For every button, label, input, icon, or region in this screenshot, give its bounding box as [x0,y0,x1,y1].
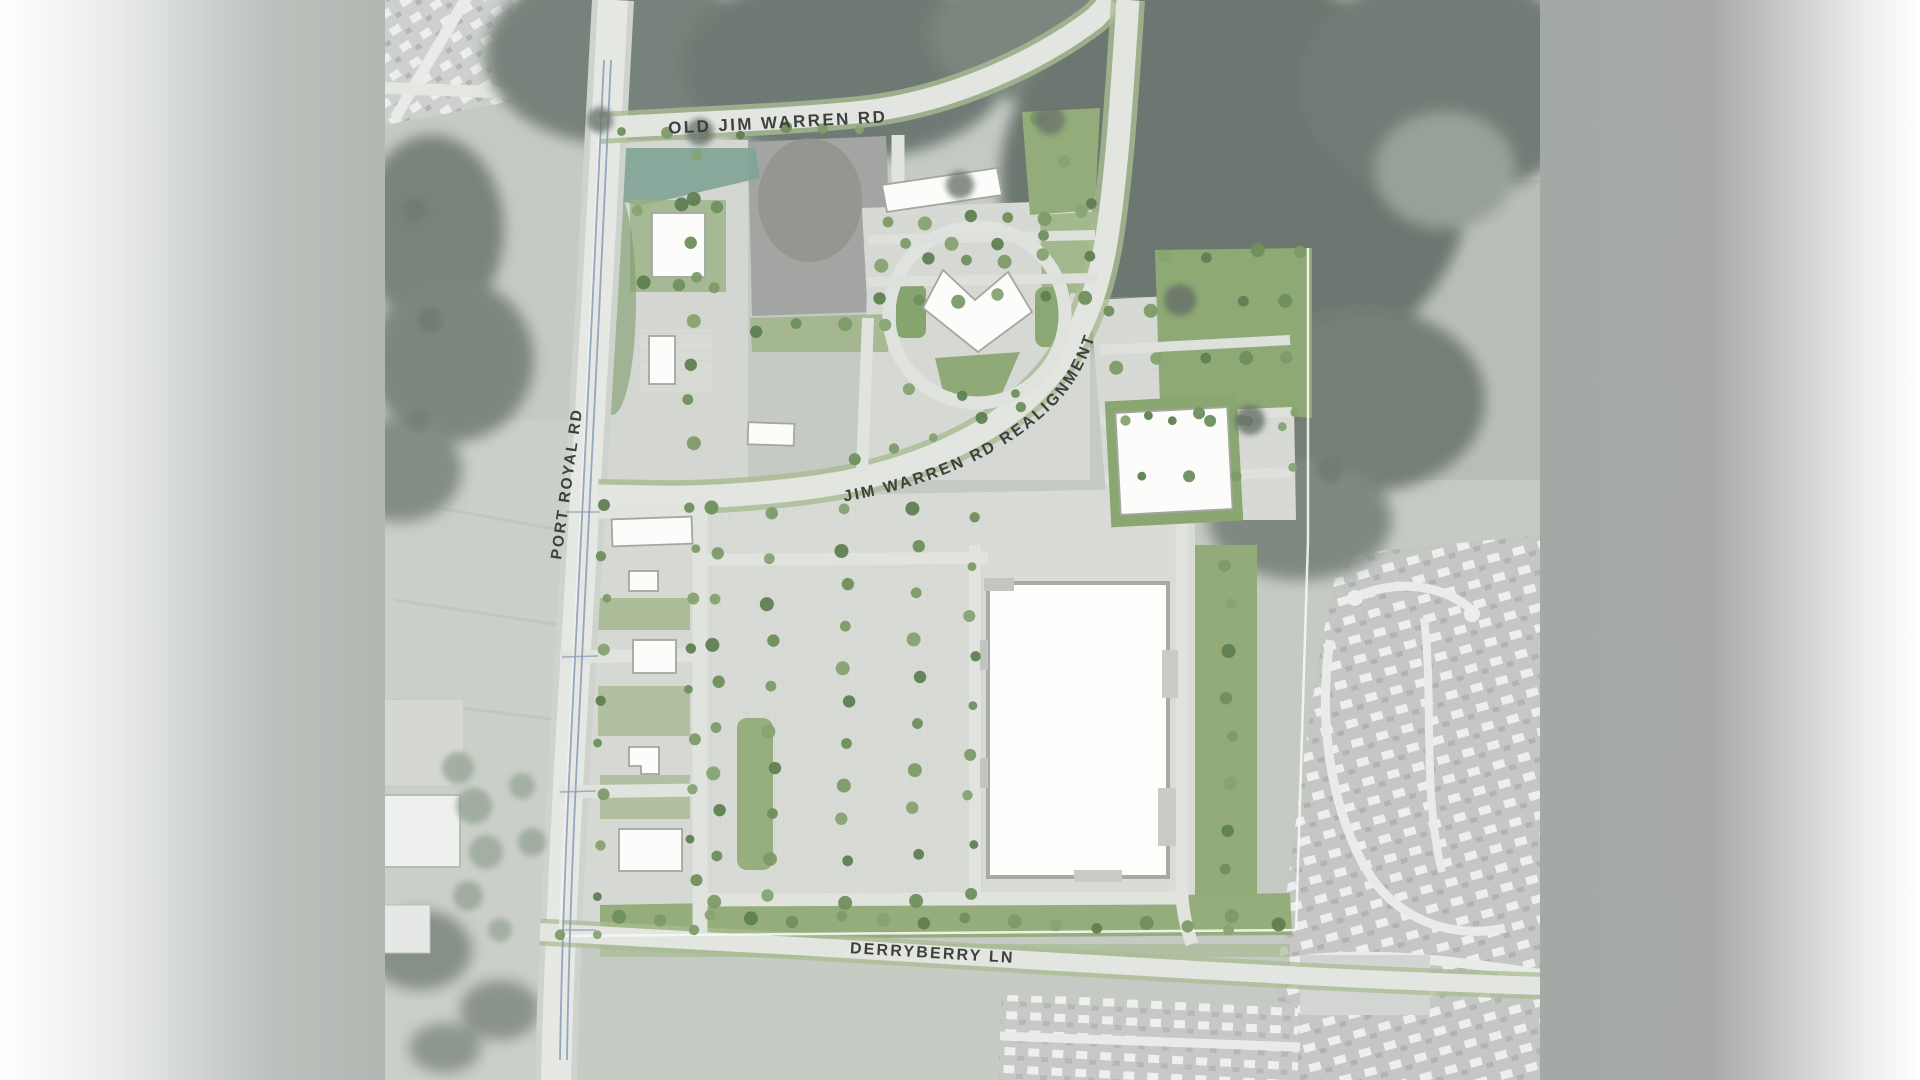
site-plan-screenshot: OLD JIM WARREN RD PORT ROYAL RD JIM WARR… [0,0,1920,1080]
building-outparcel-w2 [649,336,675,384]
site-plan-map: OLD JIM WARREN RD PORT ROYAL RD JIM WARR… [0,0,1920,1080]
building-anchor [980,578,1178,882]
building-outparcel-b [629,571,658,591]
aerial-photo: OLD JIM WARREN RD PORT ROYAL RD JIM WARR… [338,0,1590,1080]
building-outparcel-nw [652,213,705,277]
building-outparcel-a [612,517,693,547]
building-outparcel-e [619,829,682,871]
building-outparcel-center [748,422,795,446]
building-junior-anchor [1105,395,1243,528]
building-outparcel-c [633,640,676,673]
